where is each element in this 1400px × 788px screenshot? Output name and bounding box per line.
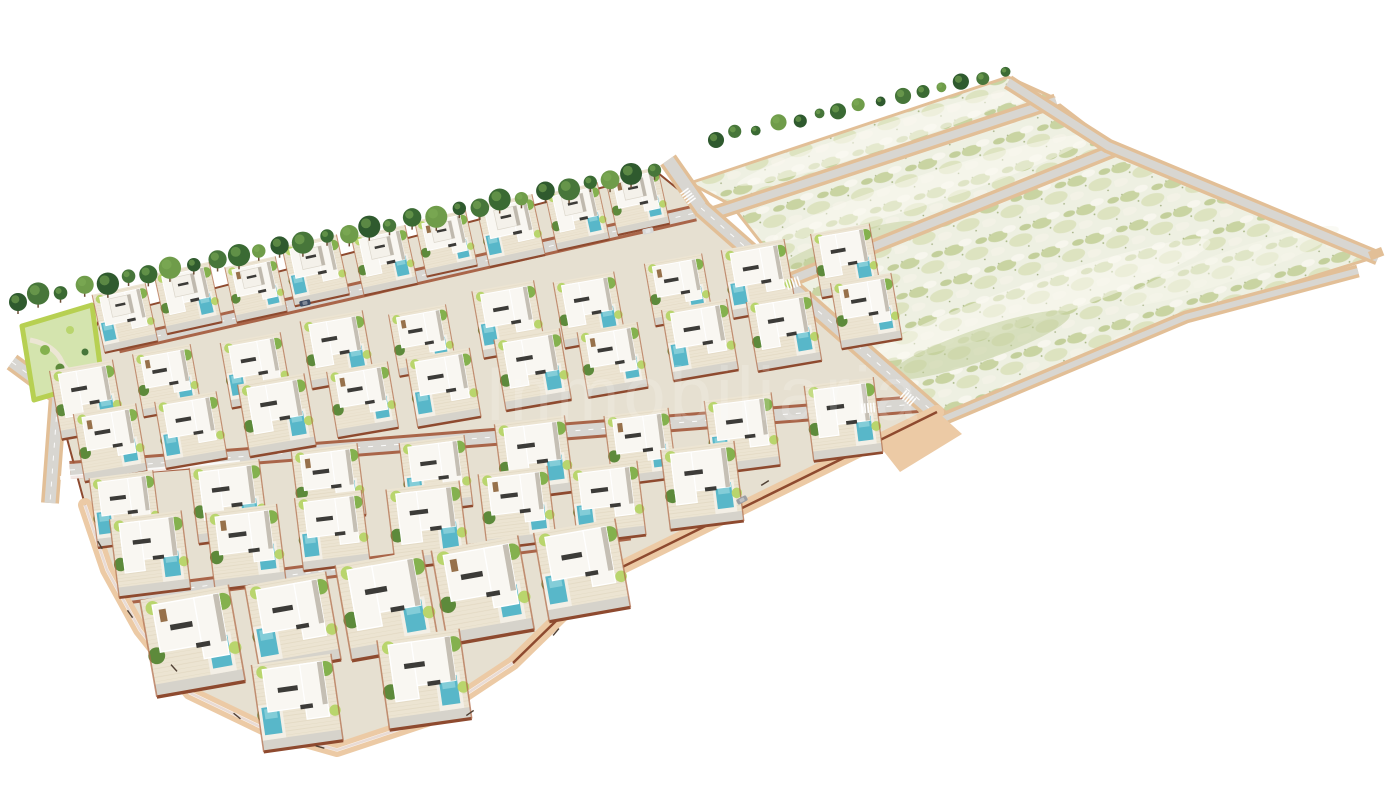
- villa-plot: [204, 504, 287, 591]
- villa-plot: [659, 441, 745, 531]
- villa-plot: [237, 373, 318, 457]
- villa-plot: [138, 584, 247, 697]
- villa-plot: [405, 348, 482, 428]
- villa-plot: [154, 391, 229, 469]
- villa-plot: [430, 535, 536, 645]
- watermark-text: Inmobiliaria: [485, 352, 922, 437]
- villa-plot: [72, 403, 148, 482]
- villa-plot: [250, 654, 345, 753]
- villa-plot: [532, 518, 632, 622]
- villa-plot: [326, 361, 400, 438]
- villa-plot: [376, 628, 474, 730]
- villa-plot: [830, 273, 904, 350]
- site-plan-svg: Inmobiliaria: [0, 0, 1400, 788]
- development-aerial-render: Inmobiliaria: [0, 0, 1400, 788]
- villa-plot: [108, 510, 192, 598]
- villa-plot: [293, 490, 371, 571]
